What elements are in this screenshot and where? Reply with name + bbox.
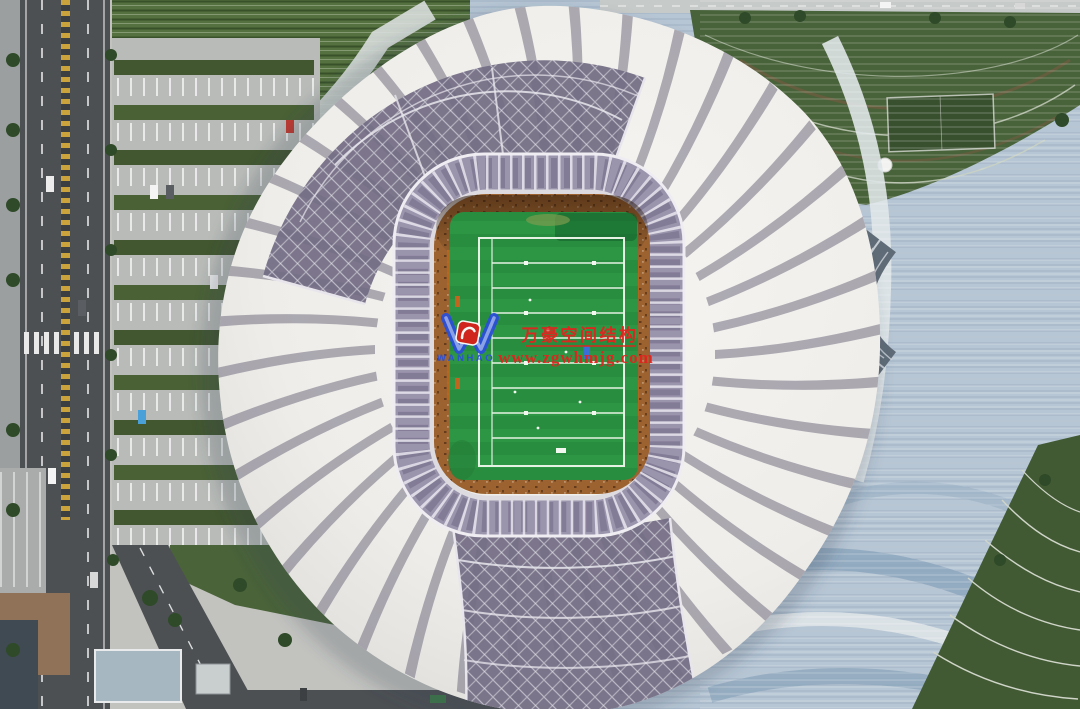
road-median xyxy=(61,0,70,520)
website-text: www.zgwhmjg.com xyxy=(498,348,654,367)
building-roof xyxy=(95,650,181,702)
logo-emblem xyxy=(455,320,480,345)
car xyxy=(78,300,86,316)
roof-lattice-tail xyxy=(452,518,700,709)
aerial-photo-svg: WANHAO 万豪空间结构 www.zgwhmjg.com xyxy=(0,0,1080,709)
car xyxy=(90,572,98,588)
building-roof xyxy=(196,664,230,694)
company-name-text: 万豪空间结构 xyxy=(521,325,639,345)
car xyxy=(48,468,56,484)
aerial-photo: WANHAO 万豪空间结构 www.zgwhmjg.com xyxy=(0,0,1080,709)
car xyxy=(46,176,54,192)
logo-text: WANHAO xyxy=(437,353,495,364)
watermark: WANHAO 万豪空间结构 www.zgwhmjg.com xyxy=(437,318,654,367)
